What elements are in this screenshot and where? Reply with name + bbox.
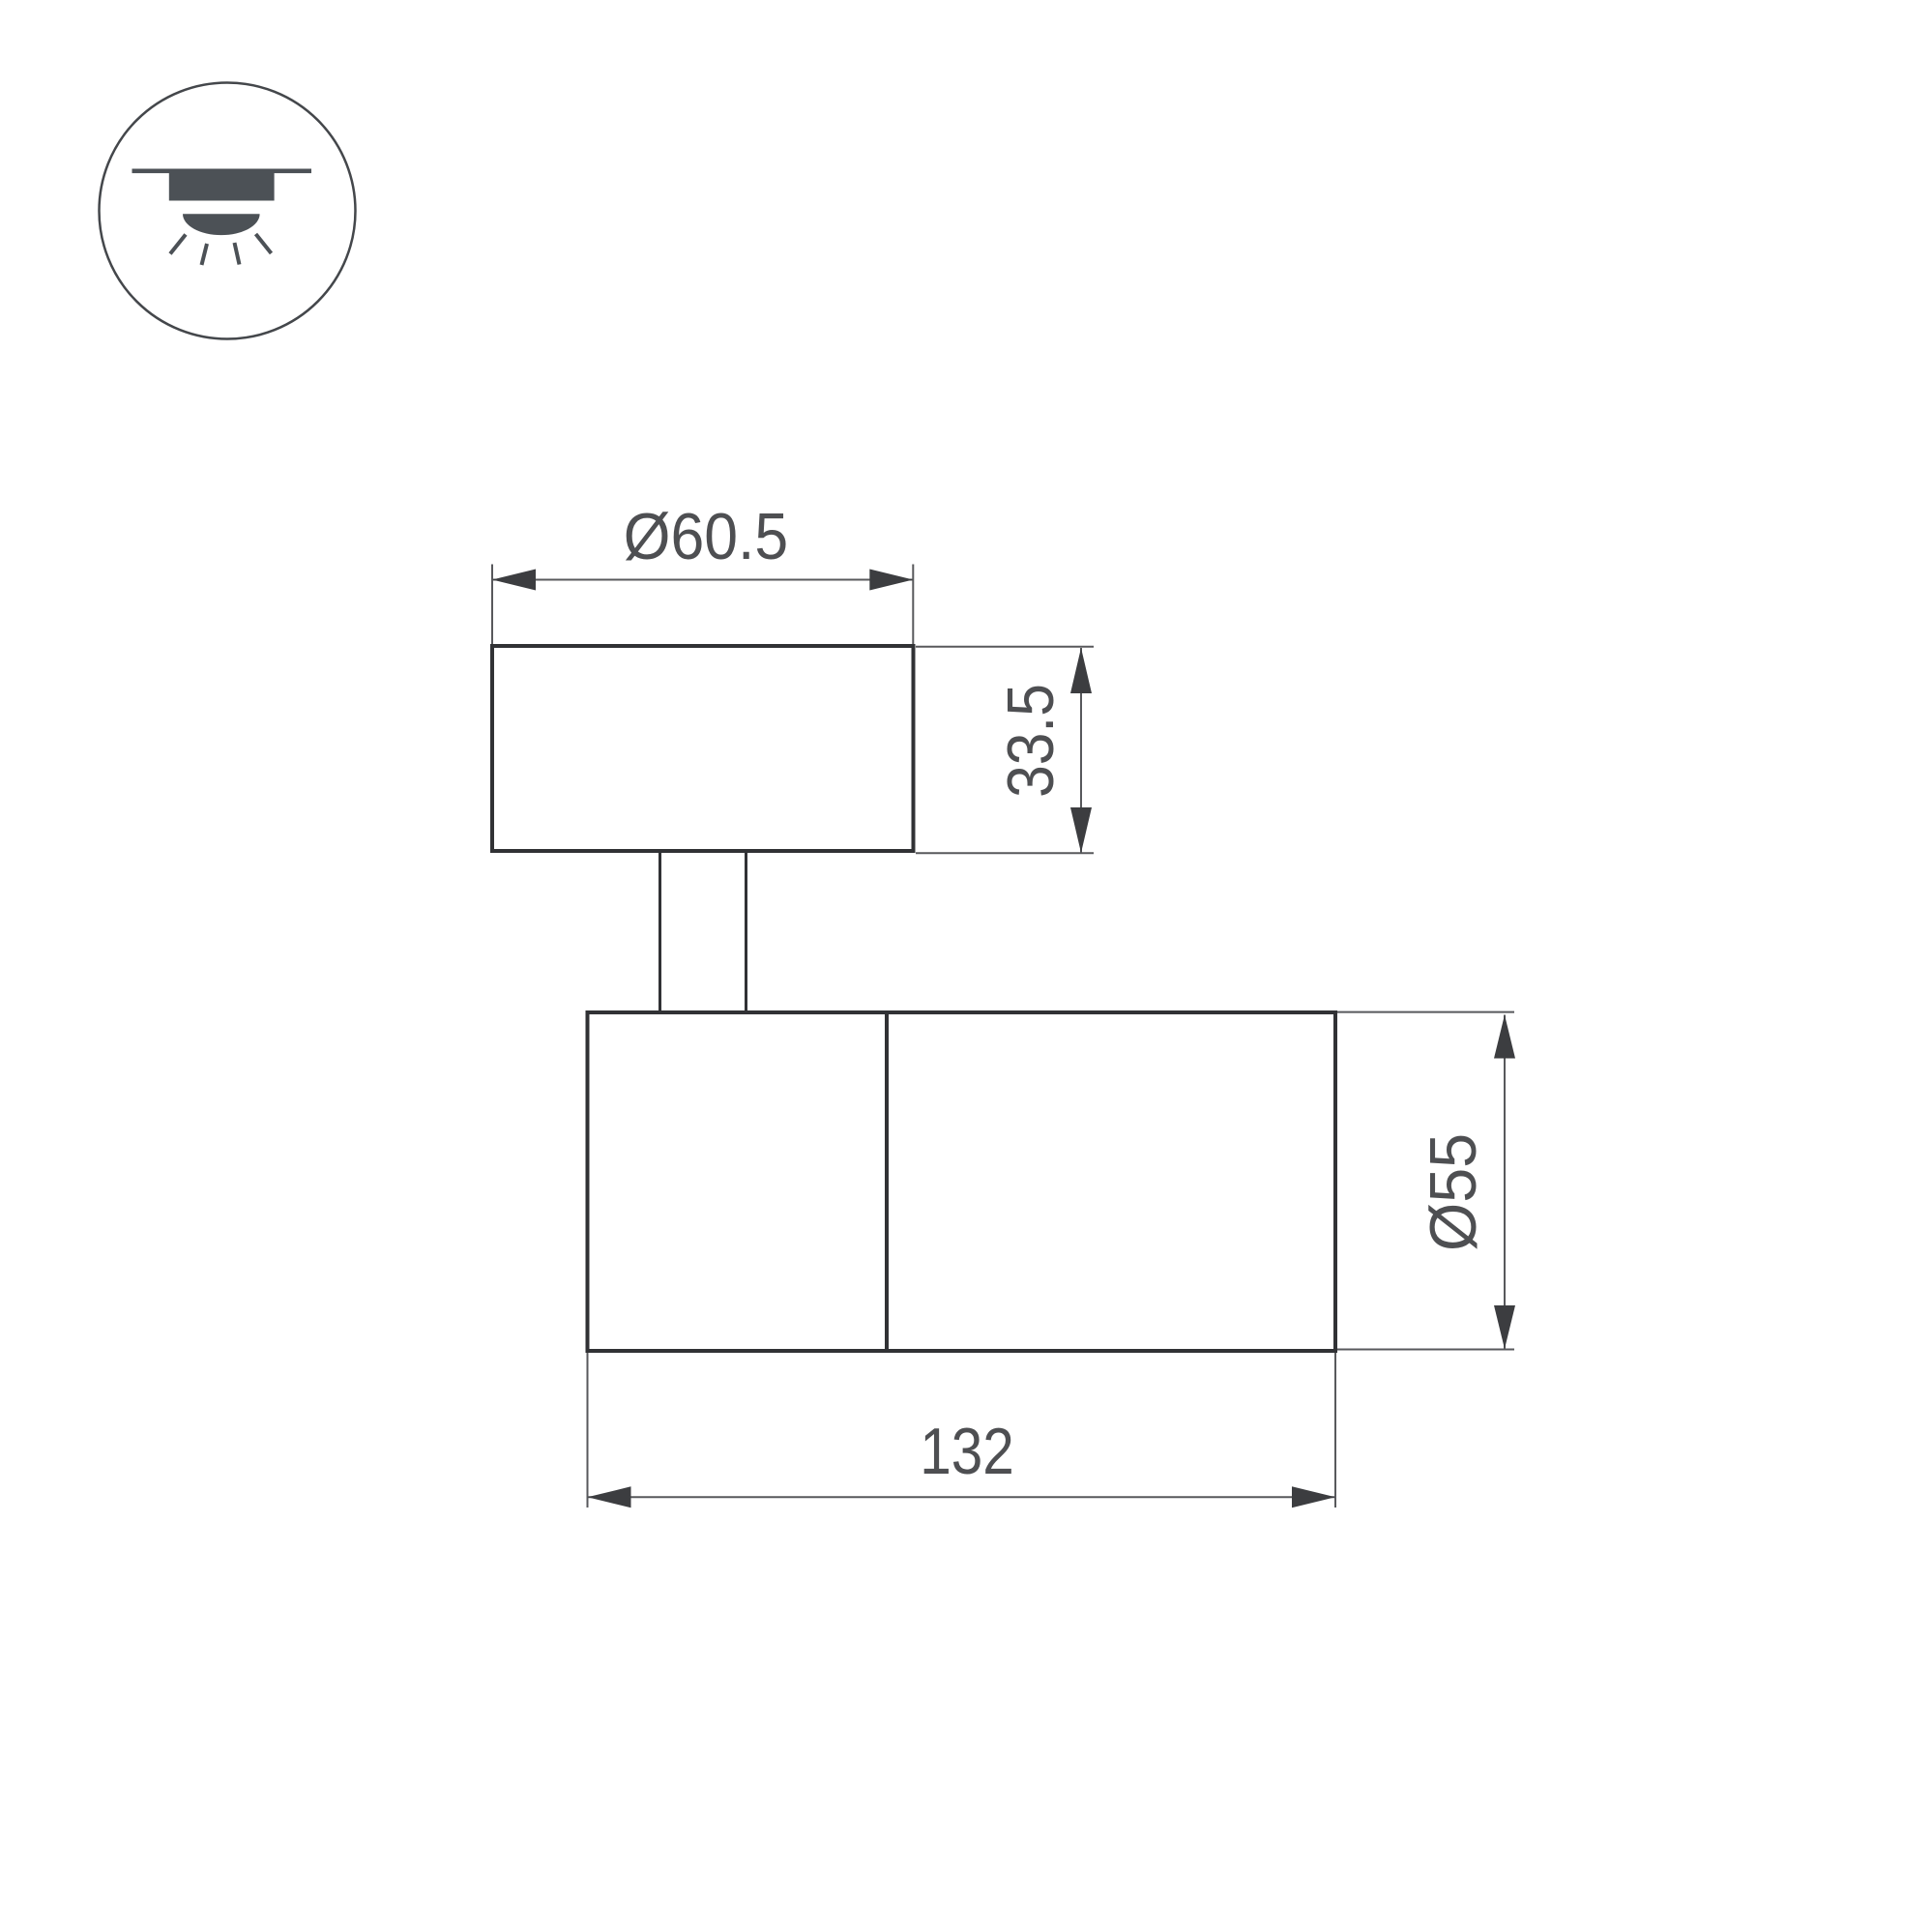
svg-text:Ø60.5: Ø60.5 [624,500,788,573]
svg-text:132: 132 [920,1416,1014,1488]
svg-text:33.5: 33.5 [994,684,1068,798]
svg-text:Ø55: Ø55 [1418,1133,1491,1251]
